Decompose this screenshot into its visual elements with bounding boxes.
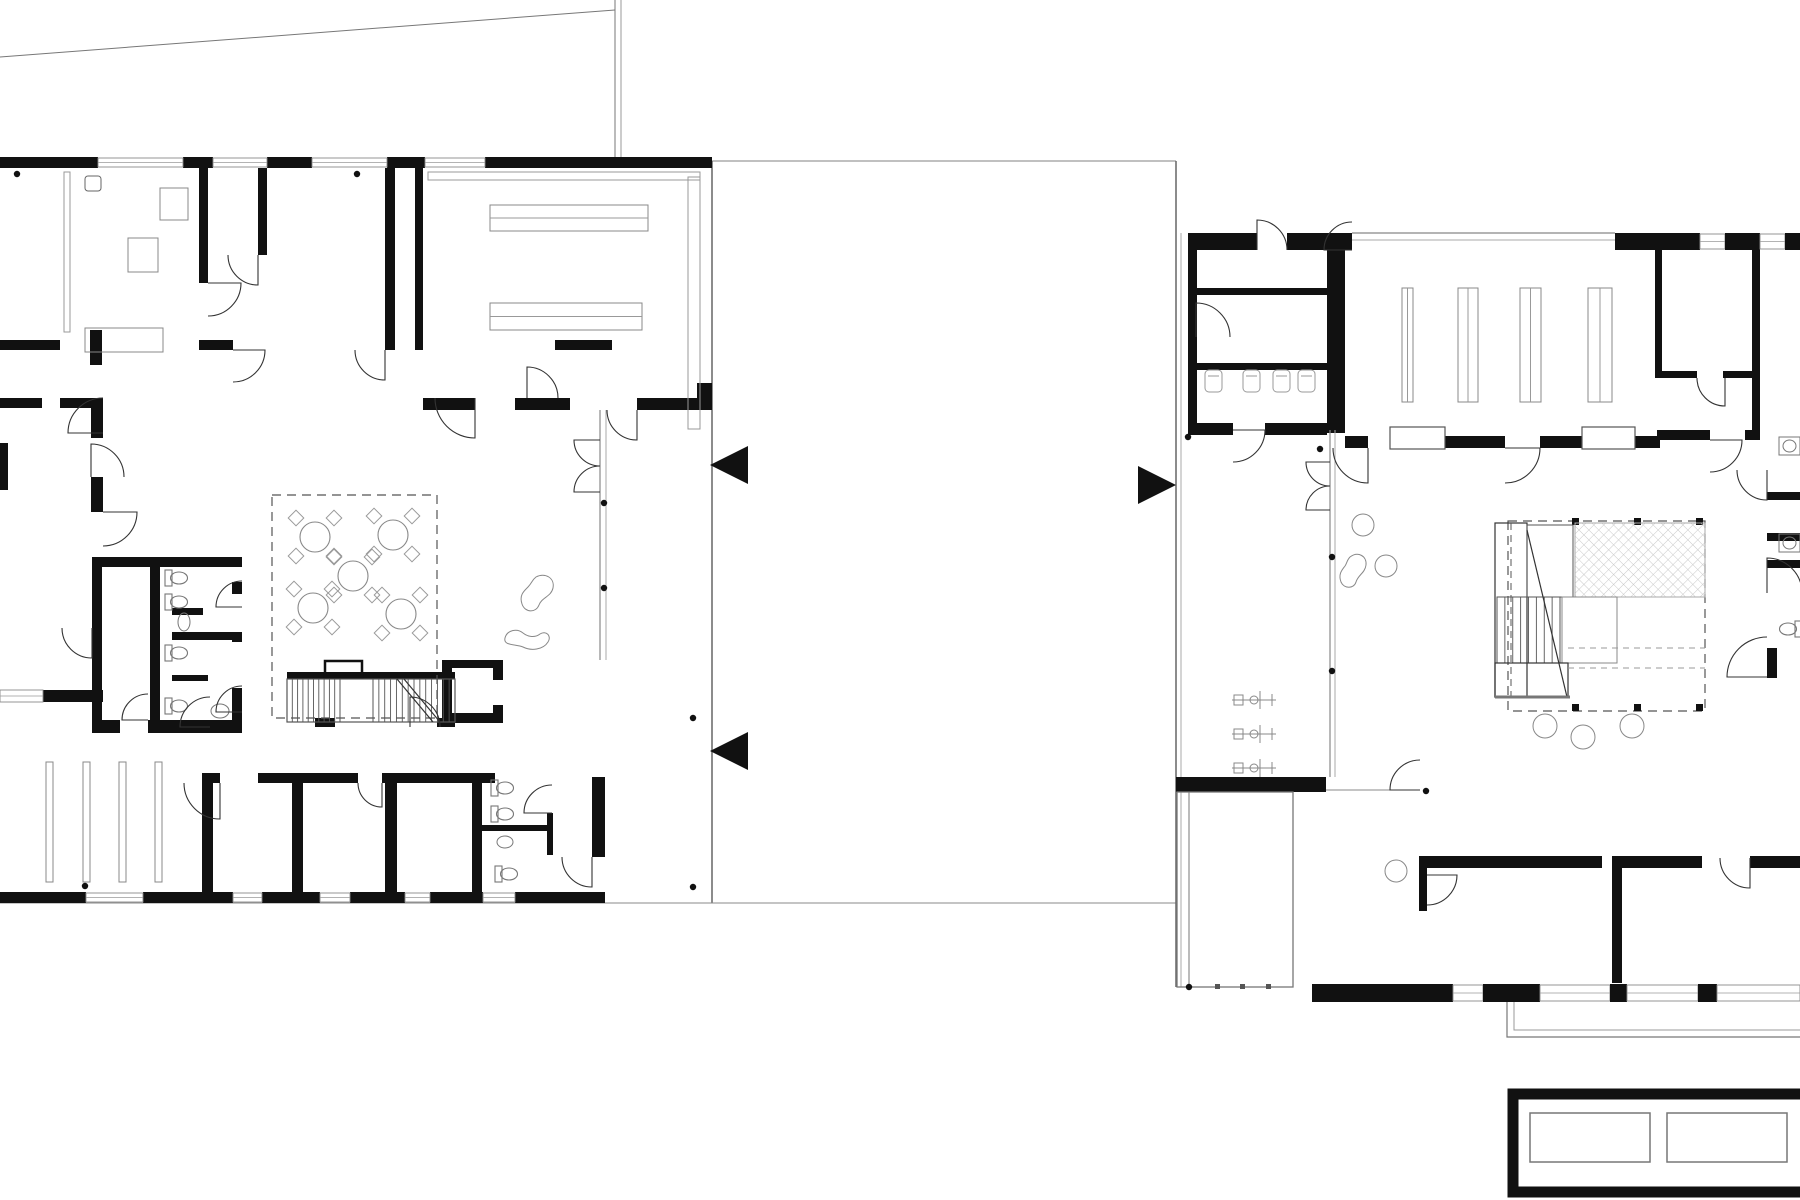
marker-dot [82, 883, 88, 889]
wall [92, 557, 150, 567]
wall [199, 340, 233, 350]
wall [1634, 704, 1641, 711]
wall [1483, 984, 1540, 1002]
wall [0, 157, 98, 168]
wall [183, 157, 213, 168]
wall [1188, 423, 1233, 435]
wall [292, 773, 303, 892]
wall [232, 688, 242, 720]
wall [91, 477, 103, 512]
window [1760, 234, 1785, 249]
marker-dot [354, 171, 360, 177]
wall [415, 168, 423, 350]
wall [472, 777, 482, 892]
wall [262, 892, 320, 903]
window [86, 893, 143, 902]
wall [485, 157, 712, 168]
wall [423, 398, 475, 410]
window [320, 893, 350, 902]
wall [1427, 856, 1602, 868]
wall [1419, 856, 1427, 911]
window [483, 893, 515, 902]
wall [1265, 423, 1327, 435]
marker-dot [690, 715, 696, 721]
window [213, 158, 267, 167]
wall-opening [493, 680, 503, 705]
wall [1188, 233, 1257, 250]
stair-top-wall [287, 672, 455, 679]
window [1700, 234, 1725, 249]
wall [1215, 984, 1220, 989]
wall [430, 892, 483, 903]
wall [232, 582, 242, 594]
wall [1266, 984, 1271, 989]
wall [1785, 233, 1800, 250]
window [1627, 985, 1698, 1001]
wall [515, 892, 605, 903]
window [98, 158, 183, 167]
window [1453, 985, 1483, 1001]
wall [0, 398, 42, 408]
wall [150, 557, 242, 567]
window [425, 158, 485, 167]
wall [92, 720, 120, 733]
marker-dot [1185, 434, 1191, 440]
window [405, 893, 430, 902]
marker-dot [14, 171, 20, 177]
wall [1572, 704, 1579, 711]
floor-plan-canvas [0, 0, 1800, 1200]
wall [1750, 856, 1800, 868]
marker-dot [294, 883, 300, 889]
wall [1612, 856, 1702, 868]
wall [1657, 430, 1710, 440]
wall [1610, 984, 1627, 1002]
wall [90, 330, 102, 365]
wall [0, 892, 86, 903]
wall [150, 567, 160, 720]
wall [637, 398, 712, 410]
marker-dot [601, 500, 607, 506]
wall [547, 813, 553, 855]
wall [1752, 250, 1760, 371]
wall [267, 157, 312, 168]
marker-dot [1329, 668, 1335, 674]
wall [43, 690, 103, 702]
wall [1698, 984, 1717, 1002]
wall [1725, 233, 1760, 250]
wall [385, 168, 395, 350]
wall [202, 773, 220, 783]
wall [1327, 233, 1345, 433]
wall [555, 340, 612, 350]
wall [172, 632, 242, 640]
wall [1655, 250, 1662, 371]
wall [1196, 363, 1327, 370]
marker-dot [1186, 984, 1192, 990]
wall [0, 443, 8, 490]
wall [385, 773, 397, 892]
wall [482, 825, 547, 831]
wall [1615, 233, 1700, 250]
wall [0, 340, 60, 350]
marker-dot [601, 585, 607, 591]
wall [258, 773, 358, 783]
wall [172, 675, 208, 681]
wall [350, 892, 405, 903]
marker-dot [690, 884, 696, 890]
hatched-platform [1575, 523, 1705, 597]
marker-dot [1317, 446, 1323, 452]
wall [143, 892, 233, 903]
wall [91, 398, 103, 438]
window [233, 893, 262, 902]
wall [1612, 868, 1622, 983]
marker-dot [1423, 788, 1429, 794]
paper-background [0, 0, 1800, 1200]
wall [1176, 777, 1326, 792]
wall [1767, 648, 1777, 678]
window [1717, 985, 1800, 1001]
wall [592, 777, 605, 857]
wall [258, 168, 267, 255]
bench [1390, 427, 1445, 449]
window [1540, 985, 1610, 1001]
wall [387, 157, 425, 168]
window [312, 158, 387, 167]
floor-plan-sheet [0, 0, 1800, 1200]
wall [1696, 704, 1703, 711]
wall [1196, 288, 1327, 295]
marker-dot [1329, 554, 1335, 560]
bench [1582, 427, 1635, 449]
wall-opening [1505, 436, 1540, 448]
wall [515, 398, 570, 410]
wall [1767, 492, 1800, 500]
wall [199, 168, 208, 283]
wall [1767, 560, 1800, 568]
wall [1312, 984, 1453, 1002]
wall [1745, 430, 1760, 440]
wall [202, 773, 213, 892]
window [0, 690, 43, 702]
wall [1752, 371, 1760, 435]
wall [172, 608, 203, 615]
wall [1240, 984, 1245, 989]
wall [1655, 371, 1697, 378]
